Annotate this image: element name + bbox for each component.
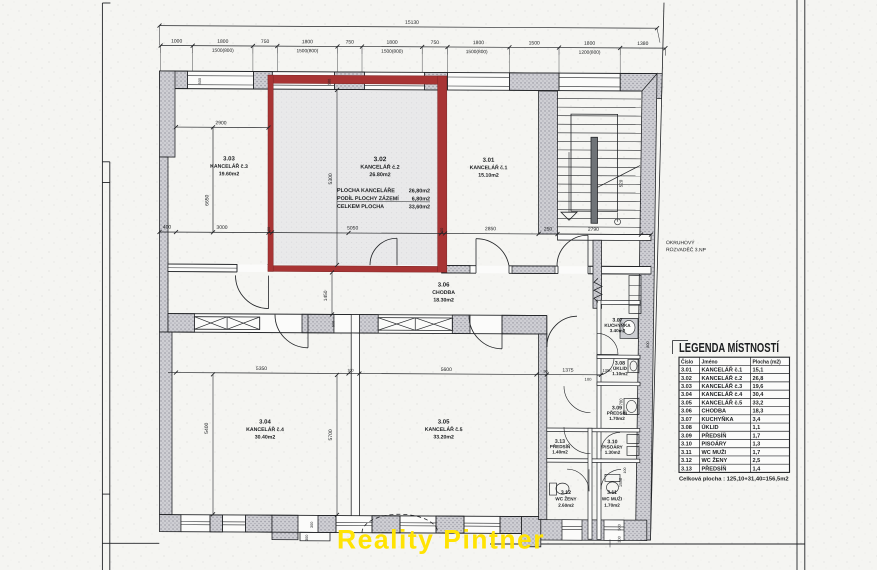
svg-text:800: 800: [646, 341, 650, 347]
svg-text:18,3: 18,3: [753, 409, 764, 415]
svg-text:750: 750: [346, 39, 355, 45]
svg-text:1500(800): 1500(800): [212, 48, 234, 54]
svg-text:Reality Pintner: Reality Pintner: [337, 525, 545, 555]
svg-text:400: 400: [163, 225, 172, 231]
svg-text:750: 750: [431, 40, 440, 46]
svg-text:OKRUHOVÝ: OKRUHOVÝ: [666, 239, 695, 246]
svg-text:1380: 1380: [637, 41, 648, 47]
svg-text:3000: 3000: [216, 225, 227, 231]
svg-text:3.10: 3.10: [681, 442, 692, 448]
svg-text:100: 100: [267, 227, 271, 233]
svg-text:1200(800): 1200(800): [579, 50, 601, 56]
svg-text:100: 100: [347, 368, 353, 372]
svg-text:30,4: 30,4: [753, 392, 765, 398]
svg-text:500: 500: [618, 524, 622, 530]
svg-text:1550: 1550: [618, 477, 623, 487]
svg-text:18.30m2: 18.30m2: [433, 297, 454, 303]
svg-text:15.10m2: 15.10m2: [478, 173, 499, 179]
svg-text:ÚKLID: ÚKLID: [702, 424, 719, 431]
svg-text:5400: 5400: [204, 422, 210, 433]
svg-text:1350: 1350: [602, 368, 612, 373]
svg-text:KANCELÁŘ č.3: KANCELÁŘ č.3: [702, 382, 743, 390]
svg-text:2.60m2: 2.60m2: [558, 503, 574, 508]
svg-text:Jméno: Jméno: [702, 359, 718, 365]
svg-text:1800: 1800: [302, 39, 313, 45]
svg-text:3.11: 3.11: [607, 490, 617, 496]
svg-text:1800: 1800: [387, 40, 398, 46]
svg-text:CHODBA: CHODBA: [702, 409, 727, 415]
svg-text:KANCELÁŘ č.1: KANCELÁŘ č.1: [470, 163, 508, 171]
svg-text:1,7: 1,7: [753, 433, 761, 439]
svg-text:1.30m2: 1.30m2: [605, 450, 621, 455]
svg-text:KANCELÁŘ č.4: KANCELÁŘ č.4: [246, 425, 284, 433]
svg-text:Plocha (m2): Plocha (m2): [753, 359, 782, 365]
svg-text:3.07: 3.07: [681, 417, 692, 423]
svg-text:3,4: 3,4: [753, 417, 762, 423]
svg-text:1450: 1450: [323, 290, 329, 301]
svg-text:KANCELÁŘ č.4: KANCELÁŘ č.4: [702, 390, 744, 398]
svg-text:1,1: 1,1: [753, 425, 761, 431]
svg-text:KANCELÁŘ č.2: KANCELÁŘ č.2: [702, 374, 743, 382]
svg-text:33.20m2: 33.20m2: [433, 434, 454, 440]
svg-text:ÚKLID: ÚKLID: [613, 365, 628, 371]
svg-text:LEGENDA MÍSTNOSTÍ: LEGENDA MÍSTNOSTÍ: [679, 340, 779, 355]
svg-text:19.60m2: 19.60m2: [219, 171, 240, 177]
svg-text:3.01: 3.01: [483, 158, 495, 164]
svg-text:15,1: 15,1: [753, 368, 764, 374]
svg-text:ROZVADĚČ 3.NP: ROZVADĚČ 3.NP: [666, 245, 707, 253]
svg-text:500: 500: [198, 78, 202, 84]
svg-text:26.80m2: 26.80m2: [369, 172, 390, 178]
svg-text:3.04: 3.04: [259, 420, 271, 426]
svg-text:5600: 5600: [441, 367, 452, 373]
svg-text:3.09: 3.09: [681, 433, 692, 439]
svg-text:250: 250: [544, 227, 553, 233]
svg-text:6650: 6650: [205, 194, 211, 205]
svg-text:30.40m2: 30.40m2: [255, 434, 276, 440]
svg-text:CELKEM PLOCHA: CELKEM PLOCHA: [337, 204, 384, 210]
svg-text:1.10m2: 1.10m2: [612, 371, 628, 376]
svg-text:750: 750: [261, 39, 270, 45]
svg-text:300: 300: [618, 536, 622, 542]
svg-text:2,5: 2,5: [753, 458, 761, 464]
svg-text:3.01: 3.01: [681, 368, 692, 374]
svg-text:3.13: 3.13: [681, 466, 692, 472]
svg-text:1,4: 1,4: [753, 466, 762, 472]
svg-text:2900: 2900: [215, 120, 226, 126]
svg-text:500: 500: [328, 79, 332, 85]
svg-text:1500(800): 1500(800): [296, 48, 318, 54]
svg-text:5350: 5350: [256, 366, 267, 372]
svg-text:6,80m2: 6,80m2: [412, 196, 430, 202]
svg-text:1,3: 1,3: [753, 442, 761, 448]
svg-text:3.11: 3.11: [681, 450, 692, 456]
svg-text:1800: 1800: [473, 40, 484, 46]
svg-text:3.05: 3.05: [438, 419, 450, 425]
svg-text:PISOÁRY: PISOÁRY: [602, 444, 623, 450]
svg-text:3.02: 3.02: [681, 376, 692, 382]
svg-text:3.06: 3.06: [438, 282, 450, 288]
svg-text:1500(800): 1500(800): [466, 49, 488, 55]
svg-text:3.40m2: 3.40m2: [610, 328, 626, 333]
svg-text:50: 50: [544, 370, 548, 374]
svg-text:33,60m2: 33,60m2: [409, 204, 430, 210]
svg-text:3.06: 3.06: [681, 409, 692, 415]
svg-text:26,80m2: 26,80m2: [409, 188, 430, 194]
svg-text:3.03: 3.03: [223, 156, 235, 162]
svg-text:PŘEDSÍŇ: PŘEDSÍŇ: [702, 431, 727, 439]
svg-text:3.03: 3.03: [681, 384, 692, 390]
svg-text:Číslo: Číslo: [681, 358, 693, 365]
svg-text:500: 500: [332, 321, 336, 327]
svg-text:1500: 1500: [529, 40, 540, 46]
svg-text:5050: 5050: [347, 225, 358, 231]
svg-text:WC ŽENY: WC ŽENY: [702, 456, 728, 464]
svg-text:100: 100: [440, 228, 444, 234]
svg-text:3.12: 3.12: [681, 458, 692, 464]
svg-text:WC MUŽI: WC MUŽI: [702, 448, 727, 456]
svg-text:3.04: 3.04: [681, 392, 693, 398]
svg-text:3.05: 3.05: [681, 400, 692, 406]
svg-text:300: 300: [310, 522, 314, 528]
svg-text:PISOÁRY: PISOÁRY: [702, 441, 727, 448]
svg-text:PŘEDSÍŇ: PŘEDSÍŇ: [702, 464, 727, 472]
svg-text:1.40m2: 1.40m2: [552, 449, 568, 454]
svg-text:KANCELÁŘ č.5: KANCELÁŘ č.5: [425, 425, 463, 433]
svg-text:1375: 1375: [562, 368, 573, 374]
svg-text:1000: 1000: [171, 39, 182, 45]
svg-text:Celková plocha : 125,10+31,40=: Celková plocha : 125,10+31,40=156,5m2: [679, 477, 789, 483]
svg-text:KANCELÁŘ č.1: KANCELÁŘ č.1: [702, 366, 743, 374]
svg-text:520: 520: [619, 179, 624, 187]
svg-text:1.70m2: 1.70m2: [604, 503, 620, 508]
svg-text:3.08: 3.08: [681, 425, 692, 431]
svg-text:2850: 2850: [485, 226, 496, 232]
svg-text:KANCELÁŘ č.3: KANCELÁŘ č.3: [210, 162, 248, 170]
svg-text:1,7: 1,7: [753, 450, 761, 456]
svg-text:1500(800): 1500(800): [381, 49, 403, 55]
svg-text:3.02: 3.02: [374, 156, 387, 163]
svg-text:5700: 5700: [328, 429, 334, 440]
svg-text:26,8: 26,8: [753, 376, 764, 382]
svg-text:CHODBA: CHODBA: [432, 290, 455, 296]
svg-text:19,6: 19,6: [753, 384, 764, 390]
svg-text:5300: 5300: [328, 173, 334, 184]
svg-text:15130: 15130: [405, 20, 419, 26]
svg-text:1800: 1800: [584, 41, 595, 47]
svg-text:100: 100: [623, 467, 627, 473]
svg-text:700: 700: [619, 398, 624, 406]
svg-text:2790: 2790: [588, 227, 599, 233]
svg-text:KUCHYŇKA: KUCHYŇKA: [702, 415, 734, 423]
svg-text:33,2: 33,2: [753, 400, 764, 406]
svg-text:300: 300: [305, 535, 309, 541]
svg-text:1800: 1800: [217, 39, 228, 45]
svg-text:3.12: 3.12: [561, 490, 571, 496]
svg-text:KANCELÁŘ č.2: KANCELÁŘ č.2: [360, 163, 399, 171]
svg-text:1.70m2: 1.70m2: [609, 416, 625, 421]
svg-text:KANCELÁŘ č.5: KANCELÁŘ č.5: [702, 398, 743, 406]
svg-text:100: 100: [585, 377, 593, 382]
